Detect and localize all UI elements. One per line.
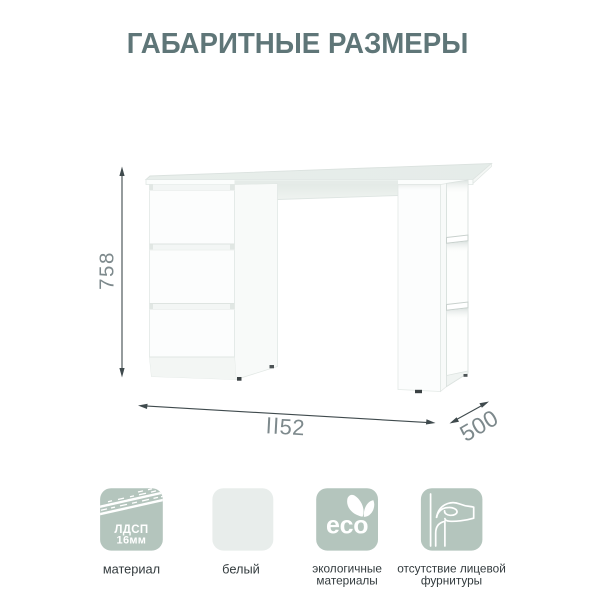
svg-text:материалы: материалы — [316, 573, 377, 587]
svg-text:материал: материал — [103, 562, 160, 577]
svg-text:белый: белый — [222, 562, 260, 577]
svg-text:16мм: 16мм — [117, 535, 147, 547]
svg-text:eco: eco — [326, 511, 368, 539]
svg-text:фурнитуры: фурнитуры — [421, 573, 482, 587]
svg-text:758: 758 — [95, 251, 118, 290]
svg-text:ГАБАРИТНЫЕ РАЗМЕРЫ: ГАБАРИТНЫЕ РАЗМЕРЫ — [127, 28, 469, 60]
svg-text:52: 52 — [279, 414, 306, 440]
svg-text:500: 500 — [455, 404, 503, 446]
